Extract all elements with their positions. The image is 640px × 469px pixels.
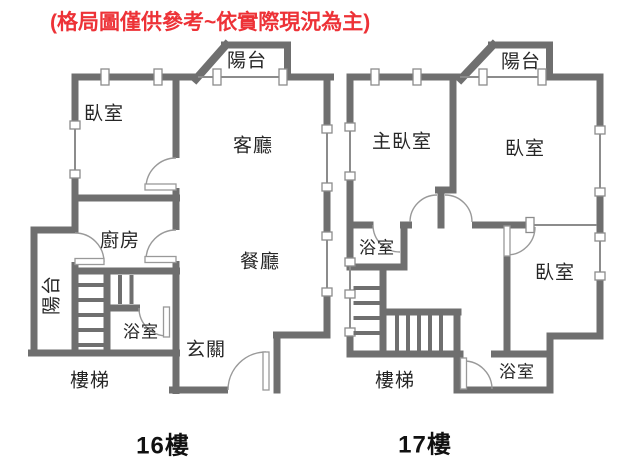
room-label-master-bedroom-17f: 主臥室	[372, 131, 432, 153]
room-label-dining-16f: 餐廳	[240, 251, 280, 273]
room-label-living-16f: 客廳	[233, 135, 273, 157]
walls-17f	[347, 42, 604, 394]
room-label-bathroom-16f: 浴室	[123, 323, 159, 342]
floor-caption-17f: 17樓	[398, 432, 452, 459]
floor-plan-17f: 陽台 主臥室 臥室 浴室 臥室 浴室 樓梯 17樓	[345, 42, 605, 459]
floor-plan-canvas: 陽台 臥室 客廳 廚房 餐廳 陽台 浴室 玄關 樓梯 16樓	[0, 0, 640, 469]
kitchen-left-door-leaf	[75, 259, 104, 265]
entrance-door-leaf	[263, 352, 269, 390]
room-label-stairs-16f: 樓梯	[70, 370, 110, 392]
floor-plan-16f: 陽台 臥室 客廳 廚房 餐廳 陽台 浴室 玄關 樓梯 16樓	[28, 42, 334, 460]
bathroom-bottom-door-leaf	[461, 358, 467, 389]
labels-17f: 陽台 主臥室 臥室 浴室 臥室 浴室 樓梯 17樓	[359, 51, 575, 459]
bathroom-door-leaf	[164, 307, 170, 337]
room-label-bedroom-16f: 臥室	[84, 103, 124, 125]
room-label-foyer-16f: 玄關	[186, 339, 226, 361]
stairs-17f	[354, 288, 442, 351]
bedroom-door-leaf	[145, 184, 176, 190]
bedroom-right-door-leaf	[504, 226, 510, 256]
kitchen-right-door-arc	[146, 230, 176, 260]
hallway-door-arc	[445, 195, 472, 222]
kitchen-right-door-leaf	[145, 257, 176, 263]
room-label-kitchen-16f: 廚房	[100, 229, 140, 252]
bathroom-bottom-door-arc	[464, 361, 492, 389]
room-label-balcony-top-16f: 陽台	[227, 50, 267, 72]
room-label-bedroom-top-17f: 臥室	[505, 138, 545, 160]
walls-16f	[28, 42, 334, 395]
entrance-door-arc	[228, 352, 266, 390]
balcony-diagonal-wall	[461, 45, 493, 79]
room-label-bathroom-bottom-17f: 浴室	[499, 363, 535, 382]
room-label-bedroom-right-17f: 臥室	[535, 262, 575, 284]
floor-caption-16f: 16樓	[136, 433, 190, 460]
room-label-balcony-side-16f: 陽台	[41, 275, 63, 315]
room-label-balcony-top-17f: 陽台	[501, 51, 541, 73]
master-bedroom-door-arc	[410, 195, 437, 222]
room-label-stairs-17f: 樓梯	[375, 370, 415, 392]
room-label-bathroom-mid-17f: 浴室	[359, 239, 395, 258]
